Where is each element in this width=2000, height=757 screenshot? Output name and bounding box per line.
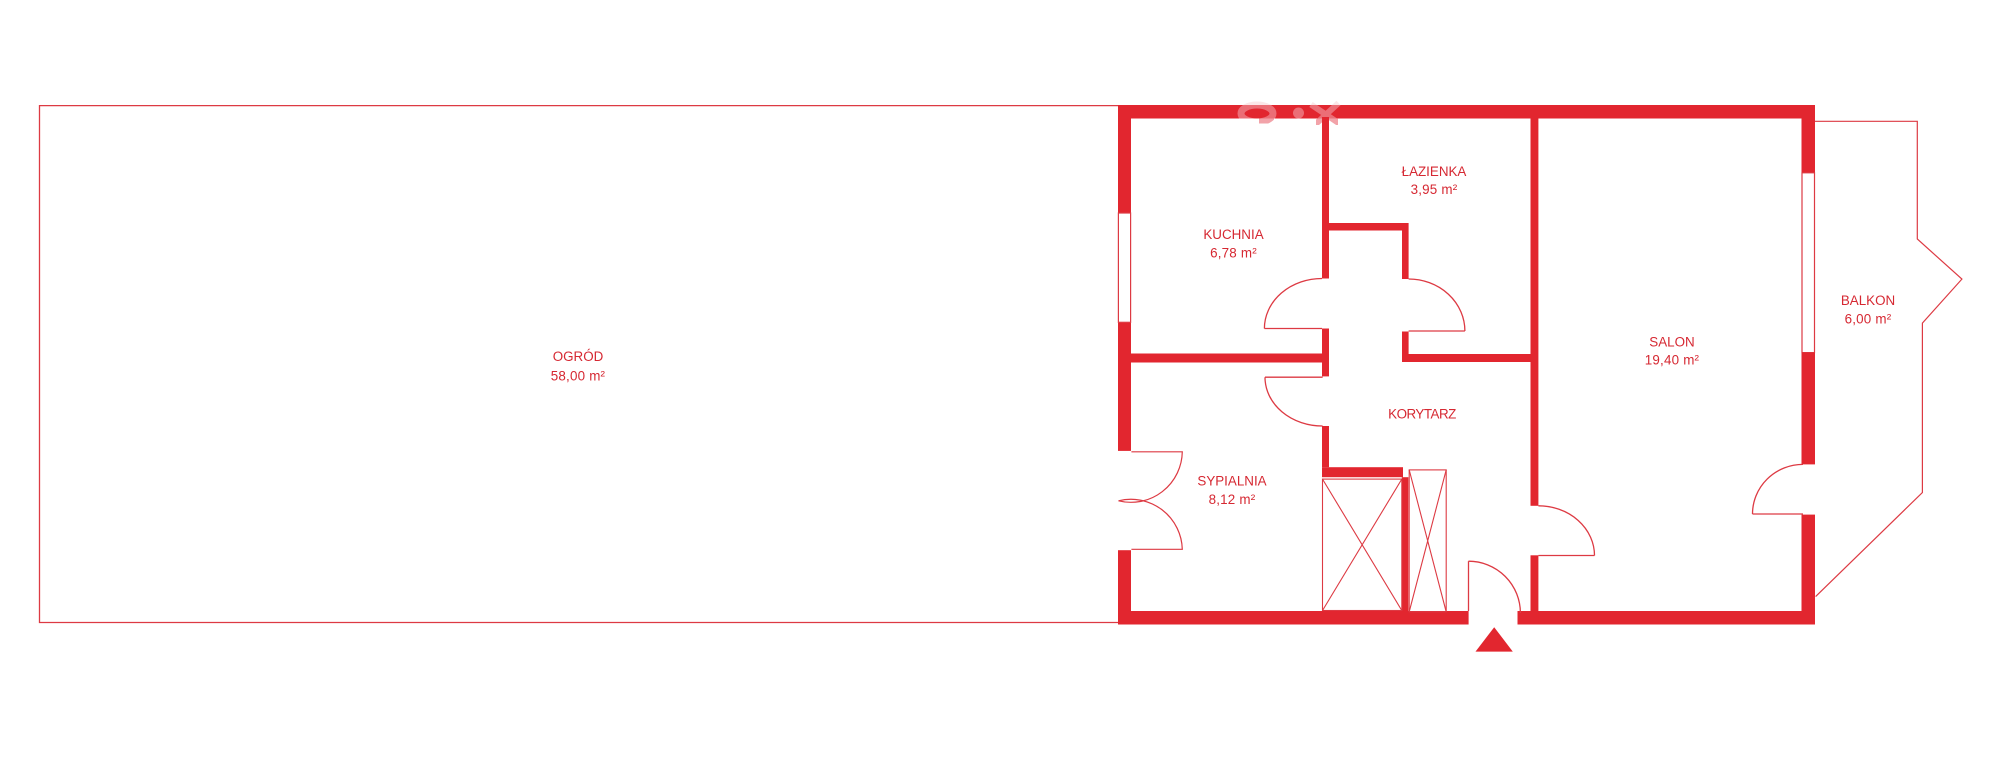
svg-text:3,95 m²: 3,95 m² xyxy=(1411,182,1458,197)
svg-text:6,00 m²: 6,00 m² xyxy=(1845,312,1892,327)
svg-text:SYPIALNIA: SYPIALNIA xyxy=(1197,473,1266,488)
svg-text:19,40 m²: 19,40 m² xyxy=(1645,353,1700,368)
svg-text:KORYTARZ: KORYTARZ xyxy=(1388,407,1456,422)
svg-text:8,12 m²: 8,12 m² xyxy=(1209,492,1256,507)
svg-text:6,78 m²: 6,78 m² xyxy=(1210,245,1257,260)
svg-text:KUCHNIA: KUCHNIA xyxy=(1203,227,1263,242)
svg-text:OGRÓD: OGRÓD xyxy=(553,349,604,364)
svg-text:58,00 m²: 58,00 m² xyxy=(551,369,606,384)
svg-text:SALON: SALON xyxy=(1649,334,1694,349)
svg-text:BALKON: BALKON xyxy=(1841,293,1895,308)
svg-text:ŁAZIENKA: ŁAZIENKA xyxy=(1402,164,1467,179)
